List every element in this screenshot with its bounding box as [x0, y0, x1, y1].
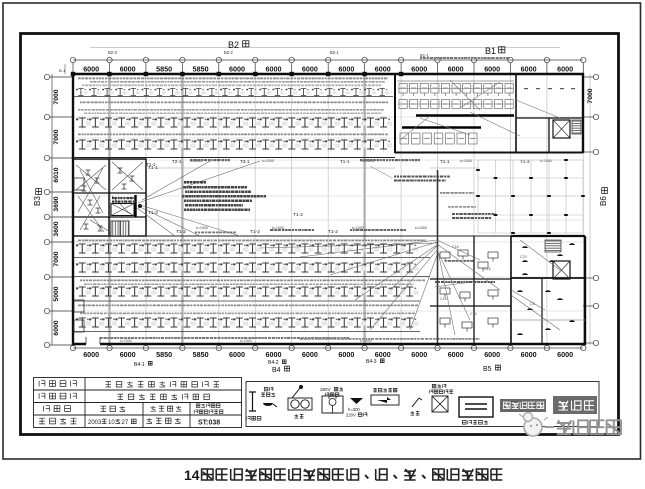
svg-text:B5: B5: [483, 366, 492, 373]
svg-text:k=1500: k=1500: [415, 226, 427, 230]
svg-text:6000: 6000: [557, 350, 573, 359]
svg-text:C16: C16: [484, 267, 491, 271]
svg-text:6010: 6010: [53, 167, 60, 182]
svg-text:B2-3: B2-3: [108, 50, 118, 55]
svg-text:ST:038: ST:038: [198, 420, 220, 427]
svg-text:B4-1: B4-1: [134, 362, 145, 368]
svg-text:T1-1: T1-1: [340, 159, 350, 164]
svg-text:B2-1: B2-1: [330, 50, 340, 55]
svg-text:T1-2: T1-2: [328, 229, 338, 235]
svg-text:6000: 6000: [83, 65, 99, 74]
svg-text:T1-1: T1-1: [440, 159, 450, 164]
svg-text:k=1500: k=1500: [460, 159, 472, 163]
svg-text:6000: 6000: [120, 65, 136, 74]
svg-text:C18: C18: [440, 297, 447, 301]
svg-text:14: 14: [184, 467, 200, 483]
svg-text:6000: 6000: [375, 350, 391, 359]
svg-text:T1-2: T1-2: [293, 212, 303, 218]
svg-text:6000: 6000: [521, 350, 537, 359]
svg-text:6000: 6000: [484, 350, 500, 359]
svg-text:k=1500: k=1500: [360, 339, 372, 343]
svg-text:5850: 5850: [156, 65, 172, 74]
svg-text:380V: 380V: [320, 387, 331, 392]
svg-text:T3-1: T3-1: [240, 159, 250, 164]
svg-text:6000: 6000: [53, 320, 60, 335]
svg-text:7000: 7000: [53, 251, 60, 266]
svg-text:6000: 6000: [229, 350, 245, 359]
svg-text:k=1500: k=1500: [262, 159, 274, 163]
svg-text:6000: 6000: [448, 65, 464, 74]
svg-text:5850: 5850: [156, 350, 172, 359]
svg-text:7000: 7000: [53, 89, 60, 104]
svg-text:6000: 6000: [266, 350, 282, 359]
svg-text:k=1500: k=1500: [240, 339, 252, 343]
svg-text:6000: 6000: [302, 65, 318, 74]
svg-text:7000: 7000: [53, 129, 60, 144]
svg-text:6000: 6000: [229, 65, 245, 74]
svg-text:6000: 6000: [411, 350, 427, 359]
svg-text:27: 27: [122, 420, 129, 426]
svg-text:k=1500: k=1500: [120, 339, 132, 343]
svg-text:220V: 220V: [346, 413, 356, 418]
svg-text:B2: B2: [228, 40, 239, 50]
svg-text:C20: C20: [520, 255, 527, 259]
svg-text:6000: 6000: [375, 65, 391, 74]
svg-text:6000: 6000: [302, 350, 318, 359]
svg-text:6000: 6000: [83, 350, 99, 359]
svg-text:T2-1: T2-1: [172, 159, 182, 164]
svg-text:B4-3: B4-3: [366, 359, 377, 365]
svg-text:5000: 5000: [53, 286, 60, 301]
svg-text:3690: 3690: [53, 196, 60, 211]
svg-text:6000: 6000: [557, 65, 573, 74]
svg-text:C14: C14: [470, 312, 477, 316]
svg-text:6000: 6000: [448, 350, 464, 359]
svg-text:6000: 6000: [484, 65, 500, 74]
svg-text:B2-2: B2-2: [224, 50, 234, 55]
svg-text:C8: C8: [530, 302, 535, 306]
svg-text:h=300: h=300: [348, 407, 360, 412]
svg-text:7000: 7000: [587, 88, 594, 103]
svg-text:B3: B3: [33, 196, 42, 206]
svg-text:B1: B1: [485, 46, 496, 56]
svg-text:2003: 2003: [88, 420, 102, 426]
svg-text:3600: 3600: [53, 221, 60, 236]
svg-text:B4: B4: [272, 367, 281, 374]
svg-text:T1-2: T1-2: [176, 229, 186, 235]
svg-text:6000: 6000: [411, 65, 427, 74]
svg-text:k=1500: k=1500: [540, 159, 552, 163]
svg-text:5850: 5850: [193, 350, 209, 359]
svg-text:6000: 6000: [338, 65, 354, 74]
svg-text:C18: C18: [452, 245, 459, 249]
svg-text:6000: 6000: [120, 350, 136, 359]
svg-text:B4-2: B4-2: [268, 360, 279, 366]
svg-text:6000: 6000: [266, 65, 282, 74]
svg-text:10: 10: [108, 420, 115, 426]
svg-text:T1-2: T1-2: [250, 229, 260, 235]
svg-text:6000: 6000: [521, 65, 537, 74]
svg-text:6000: 6000: [338, 350, 354, 359]
svg-text:5850: 5850: [193, 65, 209, 74]
svg-text:B6: B6: [599, 196, 608, 206]
svg-text:k=1500: k=1500: [196, 226, 208, 230]
